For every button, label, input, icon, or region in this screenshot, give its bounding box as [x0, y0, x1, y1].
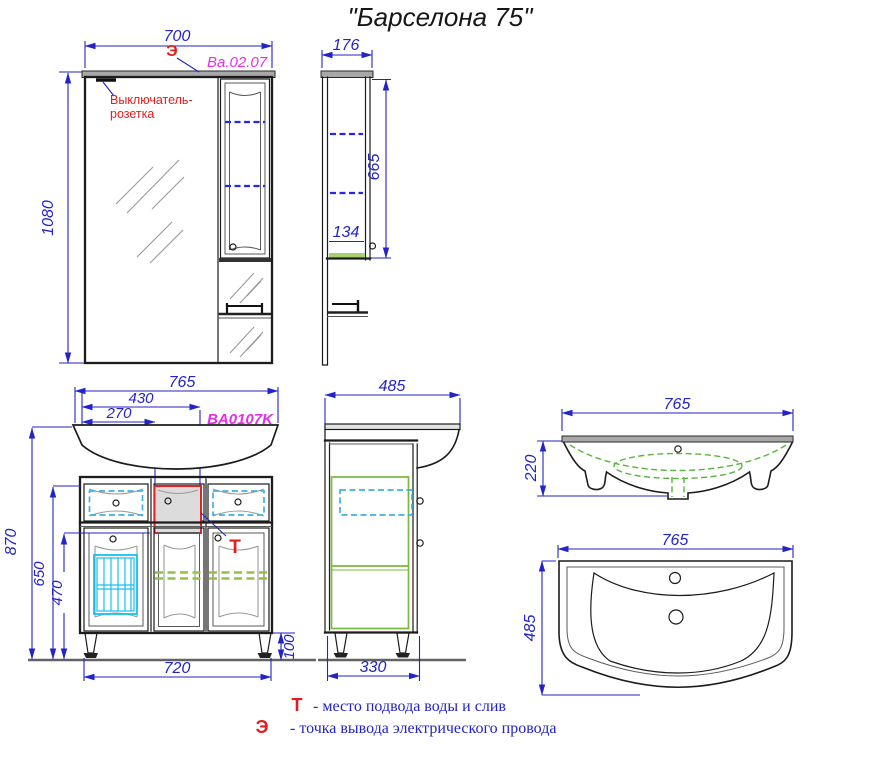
legend: Т - место подвода воды и слив Э - точка … [256, 695, 557, 737]
dim-label-sink-top-depth: 485 [522, 615, 539, 642]
legend-text-electric: - точка вывода электрического провода [290, 720, 556, 737]
sink-bowl-dashed [614, 454, 742, 479]
dim-label-sink-top-width: 765 [662, 532, 689, 549]
drawer-handle-icon [113, 500, 119, 506]
door-left [84, 528, 148, 631]
legend-symbol-water: Т [292, 695, 303, 715]
mirror-cabinet-front-view: 700 1080 Выключатель- розетка Э Ba.02.07 [40, 28, 275, 363]
sink-rim-slab [562, 436, 793, 442]
dim-label-sink-width: 765 [664, 396, 691, 413]
dim-base-depth: 330 [328, 636, 420, 681]
mirror-door [221, 79, 270, 258]
drawer-dashed-side [340, 490, 412, 515]
mirror-glass-hatch [116, 160, 184, 263]
dim-sink-top-width: 765 [558, 532, 793, 558]
back-panel-side [323, 77, 328, 365]
dim-mirror-depth: 176 [322, 37, 372, 68]
dim-650: 650 [31, 486, 81, 659]
switch-note-line2: розетка [110, 107, 154, 121]
dim-label-430: 430 [128, 390, 154, 407]
side-front-wall [413, 444, 417, 633]
door-middle [154, 528, 204, 631]
mirror-door-shelves-dashed [225, 122, 265, 186]
towel-rail-front [219, 303, 271, 318]
vanity-front-view: 765 430 270 BA0107K [3, 374, 316, 681]
dim-base-width: 720 [84, 658, 271, 681]
electric-point-marker: Э [166, 43, 177, 60]
dim-470: 470 [49, 533, 150, 659]
legend-text-water: - место подвода воды и слив [313, 698, 506, 715]
drain-hole-icon [669, 610, 683, 624]
dim-label-100: 100 [281, 634, 298, 660]
dim-label-720: 720 [164, 660, 191, 677]
dim-label-door-height: 665 [366, 154, 383, 181]
dim-label-470: 470 [49, 580, 66, 606]
door-bottom-band [219, 258, 271, 262]
drawer-right [208, 484, 269, 521]
sink-top-view: 765 485 [522, 532, 793, 695]
drawer-left [84, 484, 148, 521]
dim-mirror-height: 1080 [40, 72, 85, 363]
mirror-cabinet-side-view: 176 134 665 [321, 37, 391, 365]
dim-label-mirror-depth: 176 [333, 37, 360, 54]
technical-drawing-sheet: "Барселона 75" 700 1080 Выключатель- роз… [0, 0, 872, 760]
door-handle-icon [215, 535, 221, 541]
open-shelf-hatch-lower [230, 327, 263, 357]
wire-basket [94, 555, 137, 614]
vanity-side-view: 485 330 [318, 378, 466, 681]
drain-dashed [672, 477, 684, 497]
bowl-outline [591, 573, 774, 673]
dim-label-shelf-note: 134 [333, 224, 360, 241]
sink-back-rim-dashed [570, 445, 786, 471]
dim-sink-top-depth: 485 [522, 561, 640, 695]
mirror-article-code: Ba.02.07 [207, 54, 268, 71]
towel-rail-side [327, 300, 368, 317]
sink-slab-side [325, 424, 460, 430]
dim-label-vanity-width: 765 [169, 374, 196, 391]
dim-label-220: 220 [523, 455, 540, 483]
dim-label-650: 650 [31, 561, 48, 587]
drawing-canvas: "Барселона 75" 700 1080 Выключатель- роз… [0, 0, 872, 760]
water-point-marker: Т [229, 537, 241, 558]
mirror-door-panel [230, 92, 261, 250]
side-shelves-dashed [330, 134, 363, 193]
drawer-handle-icon [235, 499, 241, 505]
sink-profile-outline [564, 443, 792, 499]
dim-label-depth-485: 485 [379, 378, 406, 395]
faucet-hole-icon [670, 573, 681, 584]
switch-note-line1: Выключатель- [110, 93, 193, 107]
legend-symbol-electric: Э [256, 717, 269, 737]
interior-outline-green [332, 477, 409, 629]
vanity-legs-side [334, 633, 411, 658]
shelf-dashed-green [209, 573, 270, 579]
electric-marker-leader [177, 58, 199, 72]
dim-vanity-height: 870 [3, 427, 72, 659]
open-shelf-hatch-upper [230, 273, 263, 303]
vanity-legs-front [84, 633, 273, 658]
mirror-door-frame [225, 83, 265, 254]
door-handle-icon [110, 536, 116, 542]
drawer-middle [154, 484, 204, 533]
page-title: "Барселона 75" [348, 2, 535, 32]
sink-overhang-arc [417, 430, 459, 468]
box-bottom-green [329, 253, 365, 258]
dim-leg-height: 100 [273, 633, 298, 660]
shelf-dashed-green [155, 573, 203, 579]
dim-label-870: 870 [3, 529, 20, 556]
overflow-hole-icon [675, 446, 681, 452]
bowl-back-rim [594, 573, 774, 596]
side-back-wall [325, 430, 330, 633]
dim-sink-width: 765 [562, 396, 793, 431]
sink-front-view: 765 220 [523, 396, 793, 499]
dim-label-270: 270 [105, 405, 132, 422]
dim-label-330: 330 [360, 659, 387, 676]
dim-label-mirror-height: 1080 [40, 200, 57, 236]
sink-silhouette-front [73, 425, 278, 469]
